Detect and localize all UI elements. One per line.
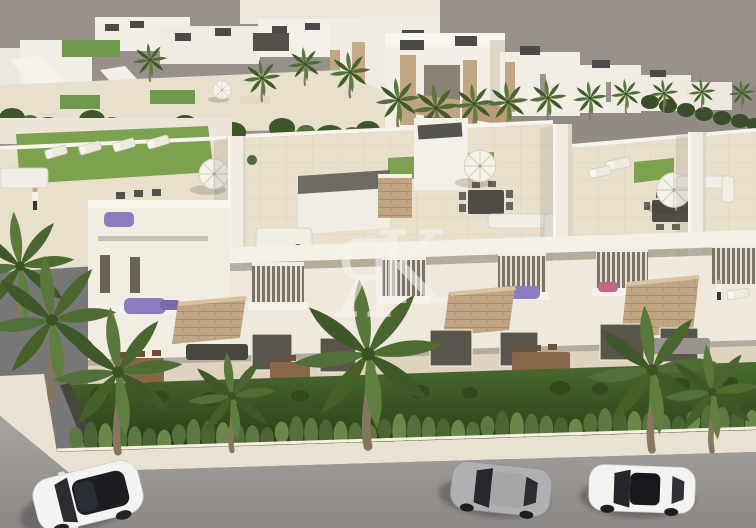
hedge-bush [69,427,83,449]
hedge-bush [172,424,186,446]
flower-box [104,212,134,227]
hedge-bush [275,422,289,444]
architectural-render: Я K [0,0,756,528]
hedge-bush [378,419,392,441]
stone-stair-core [378,176,412,218]
roof-tower [414,118,468,190]
balcony [378,256,430,304]
balcony [248,262,308,310]
flower-box [598,282,618,292]
flower-box [124,298,166,314]
stair-bulkhead [298,170,390,234]
hedge-bush [480,416,494,438]
daybed-dark [186,344,248,360]
pergola [253,33,289,51]
